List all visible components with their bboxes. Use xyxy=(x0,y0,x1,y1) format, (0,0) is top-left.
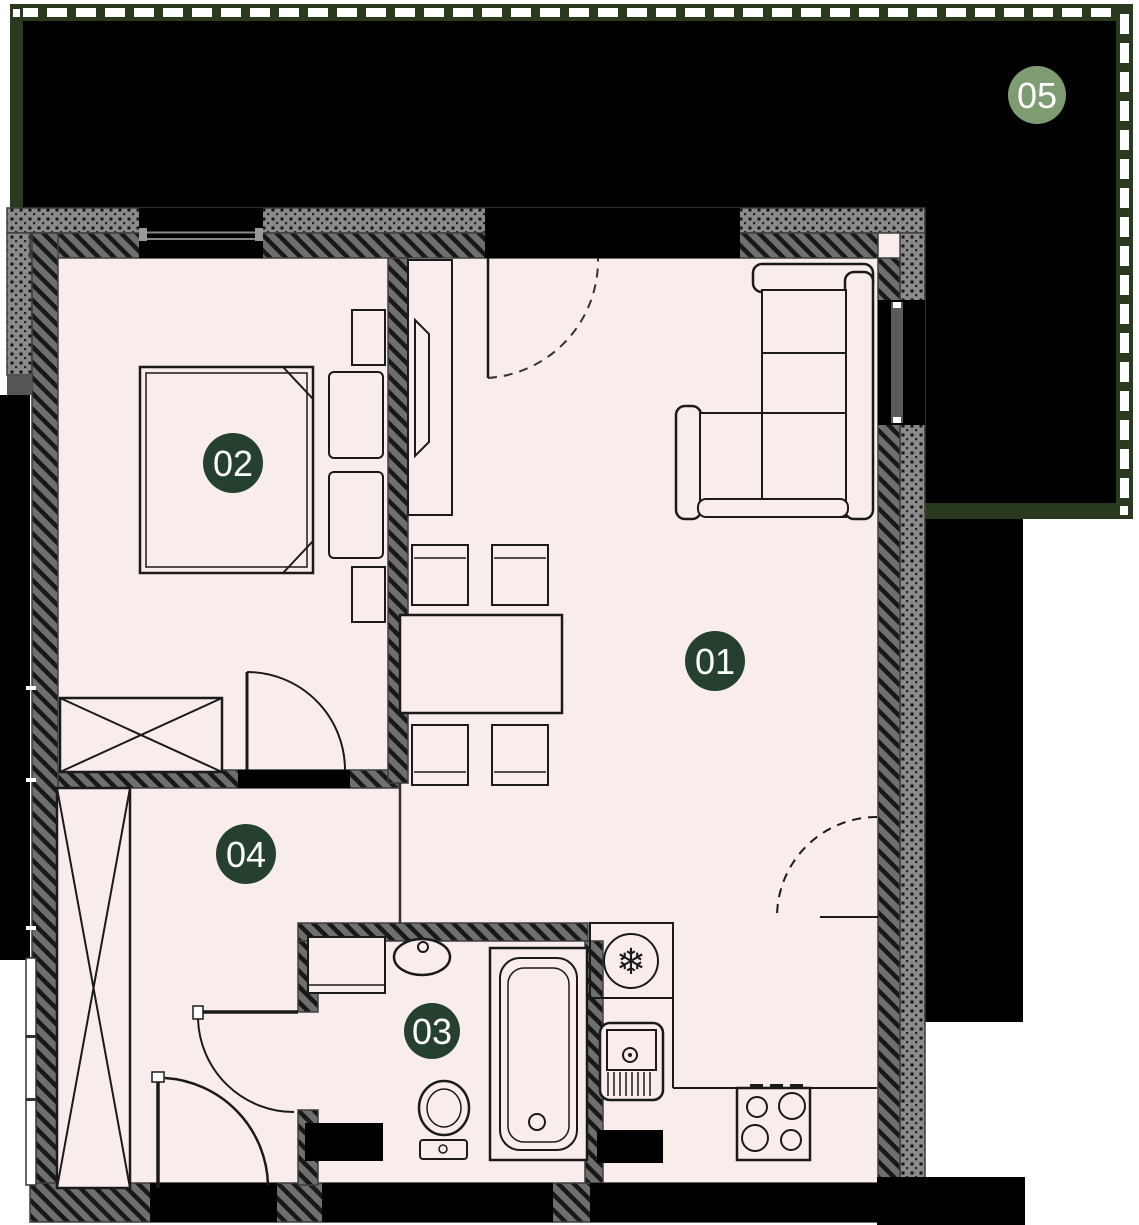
bed-pillow-bottom xyxy=(329,472,383,558)
hall-furniture xyxy=(57,788,130,1188)
living-window-frame xyxy=(891,302,903,423)
label-02: 02 xyxy=(203,433,263,493)
tv-icon xyxy=(415,320,429,456)
stove-knob-3 xyxy=(790,1084,803,1089)
label-03: 03 xyxy=(404,1003,460,1059)
entrance-door-end xyxy=(152,1072,164,1082)
label-03-text: 03 xyxy=(412,1011,452,1052)
bathroom-door-end xyxy=(193,1006,203,1019)
terrace-door-opening xyxy=(485,208,740,258)
sofa-front-edge xyxy=(698,499,848,517)
living-window-tick-bottom xyxy=(893,417,901,423)
kitchen-sink xyxy=(600,1023,663,1100)
label-04-text: 04 xyxy=(226,834,266,875)
bed-pillow-top xyxy=(329,372,383,458)
dining-chair-1 xyxy=(412,545,468,605)
dining-chair-3 xyxy=(412,725,468,785)
label-04: 04 xyxy=(216,824,276,884)
label-01-text: 01 xyxy=(695,641,735,682)
nightstand-top xyxy=(352,310,385,365)
stove xyxy=(737,1084,810,1160)
stove-knob-1 xyxy=(750,1084,763,1089)
left-window-mullion-5 xyxy=(26,1098,36,1101)
nightstand-bottom xyxy=(352,567,385,622)
sofa-cushion-1 xyxy=(762,290,846,353)
bottom-opening-bath xyxy=(322,1183,553,1222)
floorplan-page: ❄ xyxy=(0,0,1139,1225)
bedroom-door-threshold xyxy=(238,770,350,788)
label-01: 01 xyxy=(685,631,745,691)
wall-left-outer xyxy=(7,233,32,375)
railing-left xyxy=(10,4,23,210)
floorplan-svg: ❄ xyxy=(0,0,1139,1225)
living-window-tick-top xyxy=(893,302,901,308)
kitchen-sink-faucet-dot xyxy=(628,1053,632,1057)
shaft-kitchen xyxy=(597,1130,663,1163)
stove-knob-2 xyxy=(770,1084,783,1089)
left-window-mullion-3 xyxy=(26,926,36,930)
sofa-back-right xyxy=(845,272,873,519)
sofa-chaise-cushion xyxy=(700,413,762,506)
dining-chair-2 xyxy=(492,545,548,605)
label-05-text: 05 xyxy=(1017,75,1057,116)
railing-bottom xyxy=(925,503,1133,519)
left-window-mullion-4 xyxy=(26,1035,36,1038)
left-window-sill xyxy=(7,375,32,395)
snowflake-icon: ❄ xyxy=(616,941,646,982)
bathroom-sink xyxy=(394,939,450,975)
entrance-opening xyxy=(150,1183,277,1222)
dining-table xyxy=(400,615,562,713)
railing-left-post xyxy=(13,9,20,17)
label-05: 05 xyxy=(1008,66,1066,124)
exterior-mass-right xyxy=(925,512,1023,1022)
toilet xyxy=(419,1081,469,1159)
bathtub xyxy=(490,948,587,1160)
bottom-opening-kitchen xyxy=(590,1183,877,1222)
railing-corner-post xyxy=(1120,506,1128,515)
dining-chair-4 xyxy=(492,725,548,785)
left-window-mullion-2 xyxy=(26,778,36,782)
sofa-armrest xyxy=(676,406,701,519)
label-02-text: 02 xyxy=(213,443,253,484)
bedroom-window-jamb-r xyxy=(255,228,263,241)
left-window-glazing xyxy=(0,395,30,960)
left-window-mullion-1 xyxy=(26,686,36,690)
bedroom-window-jamb-l xyxy=(139,228,147,241)
shaft-bathroom xyxy=(305,1123,383,1161)
sofa-cushion-2 xyxy=(762,353,846,413)
bottom-right-mass xyxy=(877,1177,1025,1225)
toilet-tank xyxy=(420,1140,467,1159)
left-window-frame-lower xyxy=(26,958,36,1185)
bathtub-outer xyxy=(490,948,587,1160)
